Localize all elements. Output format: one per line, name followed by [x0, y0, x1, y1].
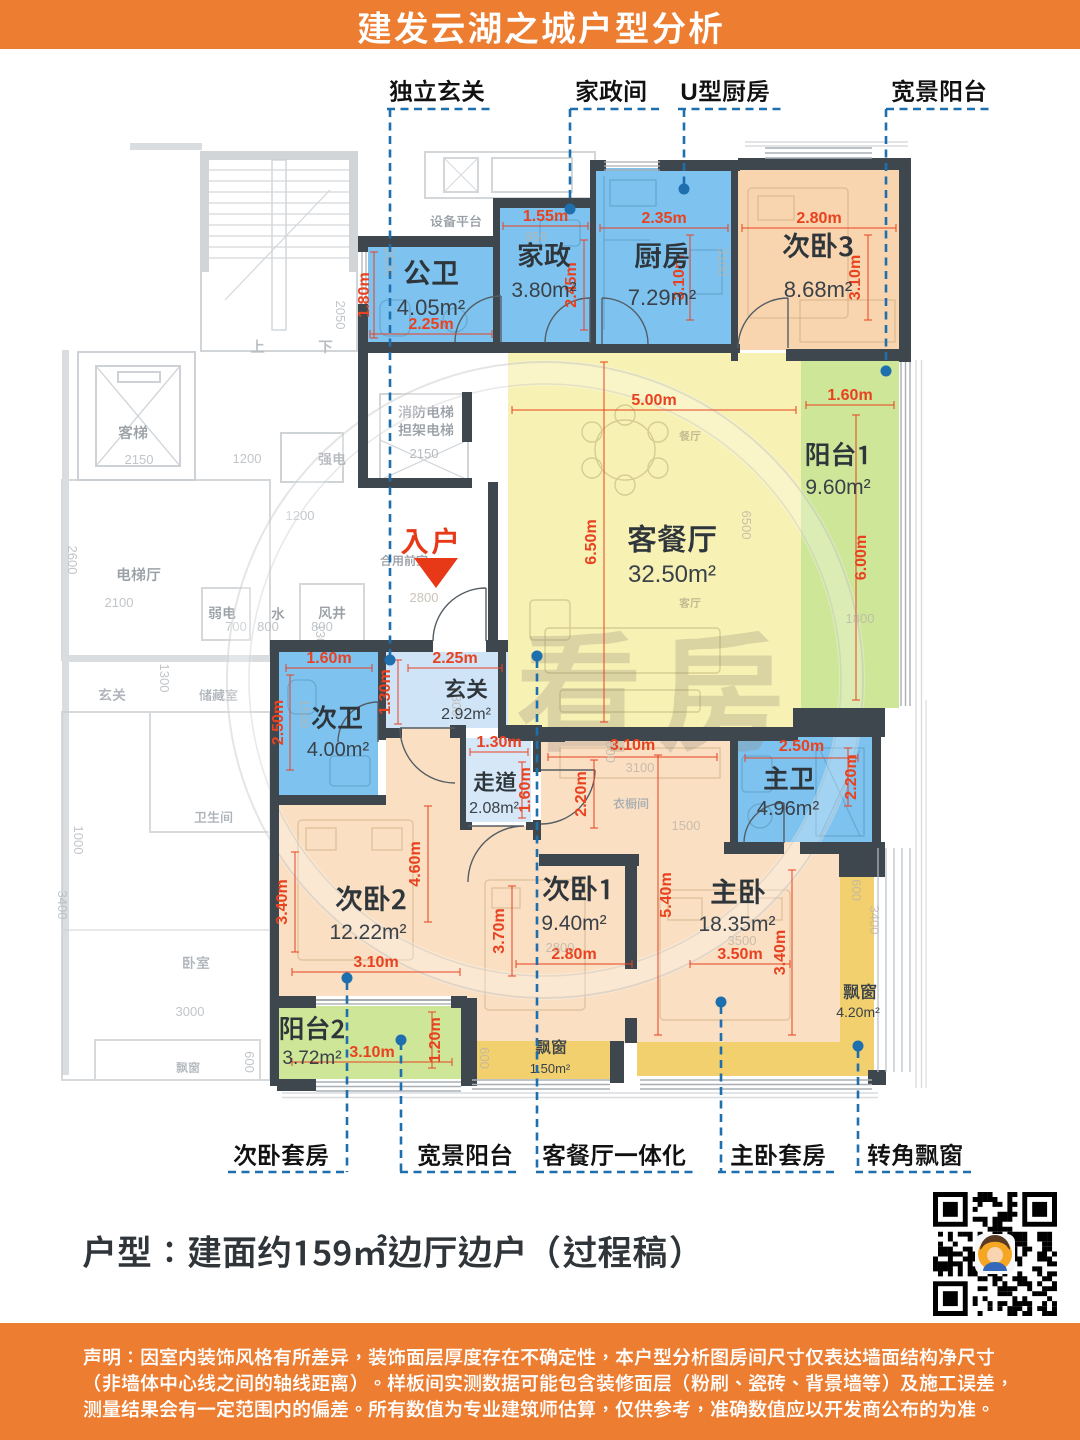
svg-text:2800: 2800: [546, 940, 575, 955]
svg-text:3.80m²: 3.80m²: [511, 279, 576, 302]
svg-text:600: 600: [477, 1047, 492, 1069]
svg-text:4.00m²: 4.00m²: [307, 739, 370, 761]
svg-text:2.92m²: 2.92m²: [441, 706, 491, 723]
svg-text:1.60m: 1.60m: [517, 767, 534, 812]
svg-text:5.00m: 5.00m: [631, 392, 676, 409]
svg-text:4.05m²: 4.05m²: [397, 295, 465, 320]
svg-text:2.50m: 2.50m: [779, 738, 824, 755]
svg-text:1300: 1300: [157, 664, 172, 693]
svg-text:1000: 1000: [71, 826, 86, 855]
svg-text:1.55m: 1.55m: [523, 208, 568, 225]
svg-text:3.50m: 3.50m: [717, 946, 762, 963]
svg-text:2800: 2800: [410, 590, 439, 605]
svg-text:2150: 2150: [410, 446, 439, 461]
svg-text:1.80m: 1.80m: [356, 272, 373, 317]
svg-text:18.35m²: 18.35m²: [698, 913, 775, 936]
svg-text:3100: 3100: [626, 760, 655, 775]
svg-text:1500: 1500: [297, 700, 312, 729]
svg-text:3400: 3400: [55, 891, 70, 920]
svg-text:6.00m: 6.00m: [853, 535, 870, 580]
svg-text:9.40m²: 9.40m²: [541, 912, 606, 935]
svg-text:600: 600: [242, 1051, 257, 1073]
svg-text:3100: 3100: [715, 248, 730, 277]
svg-text:4.20m²: 4.20m²: [836, 1004, 880, 1020]
svg-text:3.40m: 3.40m: [772, 930, 789, 975]
svg-text:3.10m: 3.10m: [349, 1044, 394, 1061]
svg-text:2600: 2600: [65, 546, 80, 575]
svg-text:3.10m: 3.10m: [353, 954, 398, 971]
svg-text:9.60m²: 9.60m²: [805, 476, 870, 499]
svg-text:6.50m: 6.50m: [583, 519, 600, 564]
svg-text:3.40m: 3.40m: [274, 879, 291, 924]
svg-text:5.40m: 5.40m: [658, 872, 675, 917]
svg-text:2.20m: 2.20m: [573, 771, 590, 816]
svg-text:950: 950: [525, 229, 547, 244]
svg-text:4.96m²: 4.96m²: [757, 798, 820, 820]
svg-text:2.20m: 2.20m: [843, 754, 860, 799]
svg-text:7.29m²: 7.29m²: [628, 285, 696, 310]
svg-text:3.70m: 3.70m: [491, 908, 508, 953]
svg-text:2150: 2150: [125, 452, 154, 467]
svg-text:U: U: [680, 79, 697, 106]
svg-text:1.30m: 1.30m: [377, 669, 394, 714]
svg-text:1.60m: 1.60m: [306, 650, 351, 667]
svg-text:32.50m²: 32.50m²: [628, 561, 716, 588]
svg-text:12.22m²: 12.22m²: [329, 921, 406, 944]
svg-text:2.08m²: 2.08m²: [469, 800, 519, 817]
svg-text:2050: 2050: [333, 301, 348, 330]
svg-text:8.68m²: 8.68m²: [784, 277, 852, 302]
svg-text:800: 800: [257, 619, 279, 634]
svg-text:3000: 3000: [176, 1004, 205, 1019]
svg-text:2.50m: 2.50m: [270, 700, 287, 745]
svg-text:1500: 1500: [672, 818, 701, 833]
svg-text:2.25m: 2.25m: [432, 650, 477, 667]
svg-text:1.30m: 1.30m: [476, 734, 521, 751]
svg-text:1200: 1200: [233, 451, 262, 466]
svg-text:2100: 2100: [105, 595, 134, 610]
svg-text:600: 600: [849, 879, 864, 901]
svg-text:4.60m: 4.60m: [407, 841, 424, 886]
svg-text:1.20m: 1.20m: [427, 1017, 444, 1062]
svg-text:1.60m: 1.60m: [827, 387, 872, 404]
svg-text:3.72m²: 3.72m²: [282, 1048, 341, 1069]
svg-text:3400: 3400: [867, 906, 882, 935]
svg-text:2.80m: 2.80m: [796, 210, 841, 227]
svg-text:6500: 6500: [739, 511, 754, 540]
svg-text:1800: 1800: [846, 611, 875, 626]
svg-text:2.35m: 2.35m: [641, 210, 686, 227]
svg-text:800: 800: [603, 741, 618, 763]
